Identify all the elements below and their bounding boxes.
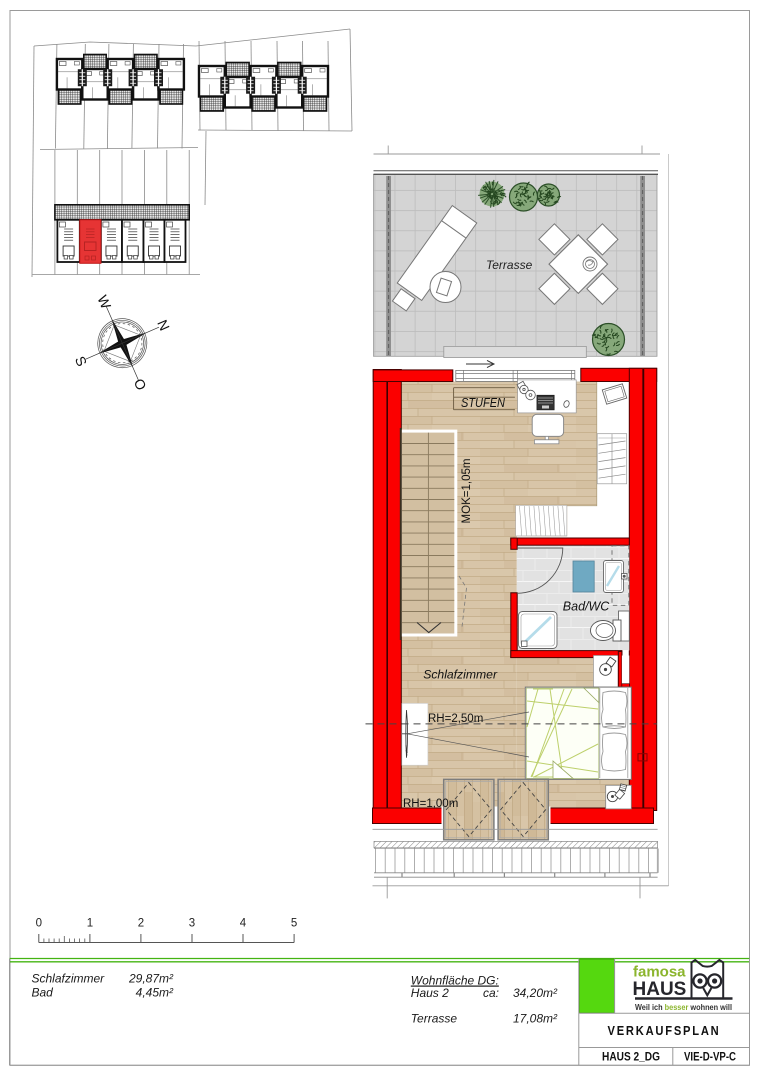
svg-text:STUFEN: STUFEN <box>461 395 506 410</box>
svg-text:VIE-D-VP-C: VIE-D-VP-C <box>684 1052 736 1064</box>
svg-text:Terrasse: Terrasse <box>486 258 533 272</box>
svg-text:RH=1,00m: RH=1,00m <box>403 798 458 810</box>
svg-text:MOK=1,05m: MOK=1,05m <box>461 459 473 524</box>
svg-text:RH=2,50m: RH=2,50m <box>428 713 483 725</box>
svg-text:34,20m²: 34,20m² <box>513 986 558 1000</box>
svg-text:N: N <box>154 317 173 333</box>
svg-text:4: 4 <box>240 918 247 930</box>
svg-text:VERKAUFSPLAN: VERKAUFSPLAN <box>608 1024 721 1038</box>
svg-text:S: S <box>72 354 90 369</box>
svg-text:famosa: famosa <box>633 964 686 981</box>
svg-text:Schlafzimmer: Schlafzimmer <box>423 668 498 682</box>
svg-text:Haus 2: Haus 2 <box>411 986 449 1000</box>
svg-text:Weil ich besser wohnen will: Weil ich besser wohnen will <box>635 1002 732 1012</box>
svg-text:17,08m²: 17,08m² <box>513 1012 558 1026</box>
svg-text:Terrasse: Terrasse <box>411 1012 458 1026</box>
svg-text:3: 3 <box>189 918 195 930</box>
svg-text:2: 2 <box>138 918 144 930</box>
svg-text:HAUS: HAUS <box>633 979 687 1000</box>
svg-text:Bad: Bad <box>32 986 54 1000</box>
svg-text:Bad/WC: Bad/WC <box>563 600 611 614</box>
svg-text:HAUS 2_DG: HAUS 2_DG <box>602 1052 660 1064</box>
svg-text:ca:: ca: <box>483 986 499 1000</box>
svg-text:O: O <box>131 376 150 392</box>
svg-text:W: W <box>94 293 114 312</box>
svg-text:1: 1 <box>87 918 93 930</box>
svg-text:Schlafzimmer: Schlafzimmer <box>32 972 106 986</box>
svg-text:29,87m²: 29,87m² <box>128 972 174 986</box>
svg-text:0: 0 <box>36 918 42 930</box>
svg-text:5: 5 <box>291 918 297 930</box>
svg-text:4,45m²: 4,45m² <box>136 986 174 1000</box>
